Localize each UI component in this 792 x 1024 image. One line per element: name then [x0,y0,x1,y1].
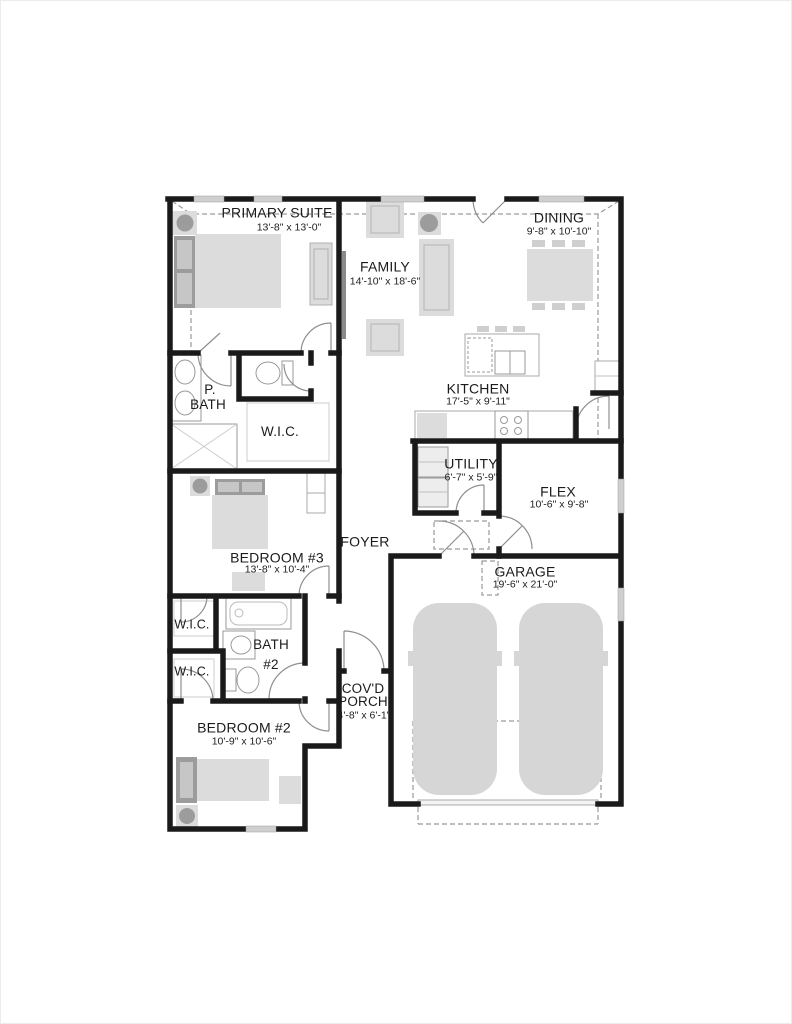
window-primary-1 [194,196,224,202]
primary-suite-nightstand [173,211,197,235]
floor-plan-drawing [1,1,792,1024]
room-label-flex: FLEX [540,485,576,500]
pantry-cabinet [595,361,621,391]
garage-entry-door [439,521,474,556]
bedroom3-bed [212,479,268,549]
tv-icon [342,251,346,339]
room-label-primary-suite: PRIMARY SUITE [222,206,333,221]
range-icon [495,411,528,439]
primary-shower [171,424,237,469]
room-dims-bedroom3: 13'-8" x 10'-4" [245,564,310,575]
garage-door-panel [418,800,598,805]
back-door [473,199,507,223]
pantry-door [576,396,609,429]
room-label-pbath-line1: P. [204,383,215,397]
window-flex [618,479,624,513]
room-label-wic-lower: W.I.C. [174,665,209,678]
front-door [344,631,384,671]
primary-bath-door [198,333,231,386]
bath2-tub [226,598,291,629]
family-armchair-top [366,201,404,238]
room-label-dining: DINING [534,211,584,226]
room-dims-porch: 4'-8" x 6'-1" [338,710,391,721]
room-label-garage: GARAGE [494,565,555,580]
driveway-apron [418,807,598,824]
room-dims-utility: 6'-7" x 5'-9" [445,472,498,483]
floor-plan-page: PRIMARY SUITE 13'-8" x 13'-0" FAMILY 14'… [0,0,792,1024]
kitchen-counter [415,411,573,439]
bedroom2-bed [176,757,269,803]
room-dims-kitchen: 17'-5" x 9'-11" [446,396,510,407]
utility-door [456,485,484,513]
bedroom3-plant [190,476,210,496]
room-label-wic-primary: W.I.C. [261,425,299,439]
primary-suite-door [301,323,331,353]
room-label-family: FAMILY [360,260,410,275]
window-garage [618,588,624,621]
room-label-kitchen: KITCHEN [447,382,510,397]
room-label-wic-upper: W.I.C. [174,618,209,631]
family-sofa [419,239,454,316]
bedroom2-dresser [279,776,301,804]
window-bedroom2 [246,826,276,832]
room-label-foyer: FOYER [340,535,389,550]
kitchen-island [465,326,539,376]
bath2-vanity [223,631,255,659]
primary-suite-bed [174,234,281,308]
dining-table [527,240,593,310]
room-dims-bedroom2: 10'-9" x 10'-6" [212,736,277,747]
bath2-toilet [225,667,259,693]
window-primary-2 [254,196,282,202]
entry-bench-outline [434,521,489,549]
room-dims-flex: 10'-6" x 9'-8" [530,499,589,510]
room-label-porch-line2: PORCH [338,695,388,709]
room-label-bath2-line1: BATH [253,638,289,652]
room-dims-primary-suite: 13'-8" x 13'-0" [257,222,322,233]
window-dining [539,196,584,202]
flex-door [499,516,532,549]
room-label-bath2-line2: #2 [263,658,278,672]
car-right [514,603,608,795]
bedroom3-wardrobe [307,473,325,513]
room-dims-family: 14'-10" x 18'-6" [350,276,420,287]
bedroom2-door [299,701,329,731]
room-label-pbath-line2: BATH [190,398,226,412]
room-dims-garage: 19'-6" x 21'-0" [493,579,558,590]
primary-suite-dresser [310,243,332,305]
fridge-icon [417,413,447,438]
window-family [381,196,424,202]
room-label-bedroom2: BEDROOM #2 [197,721,291,736]
room-dims-dining: 9'-8" x 10'-10" [527,226,592,237]
family-side-table [418,212,441,235]
room-label-utility: UTILITY [444,457,498,472]
car-left [408,603,502,795]
family-armchair-bottom [366,319,404,356]
primary-toilet [256,361,293,385]
bedroom2-plant [176,805,198,827]
